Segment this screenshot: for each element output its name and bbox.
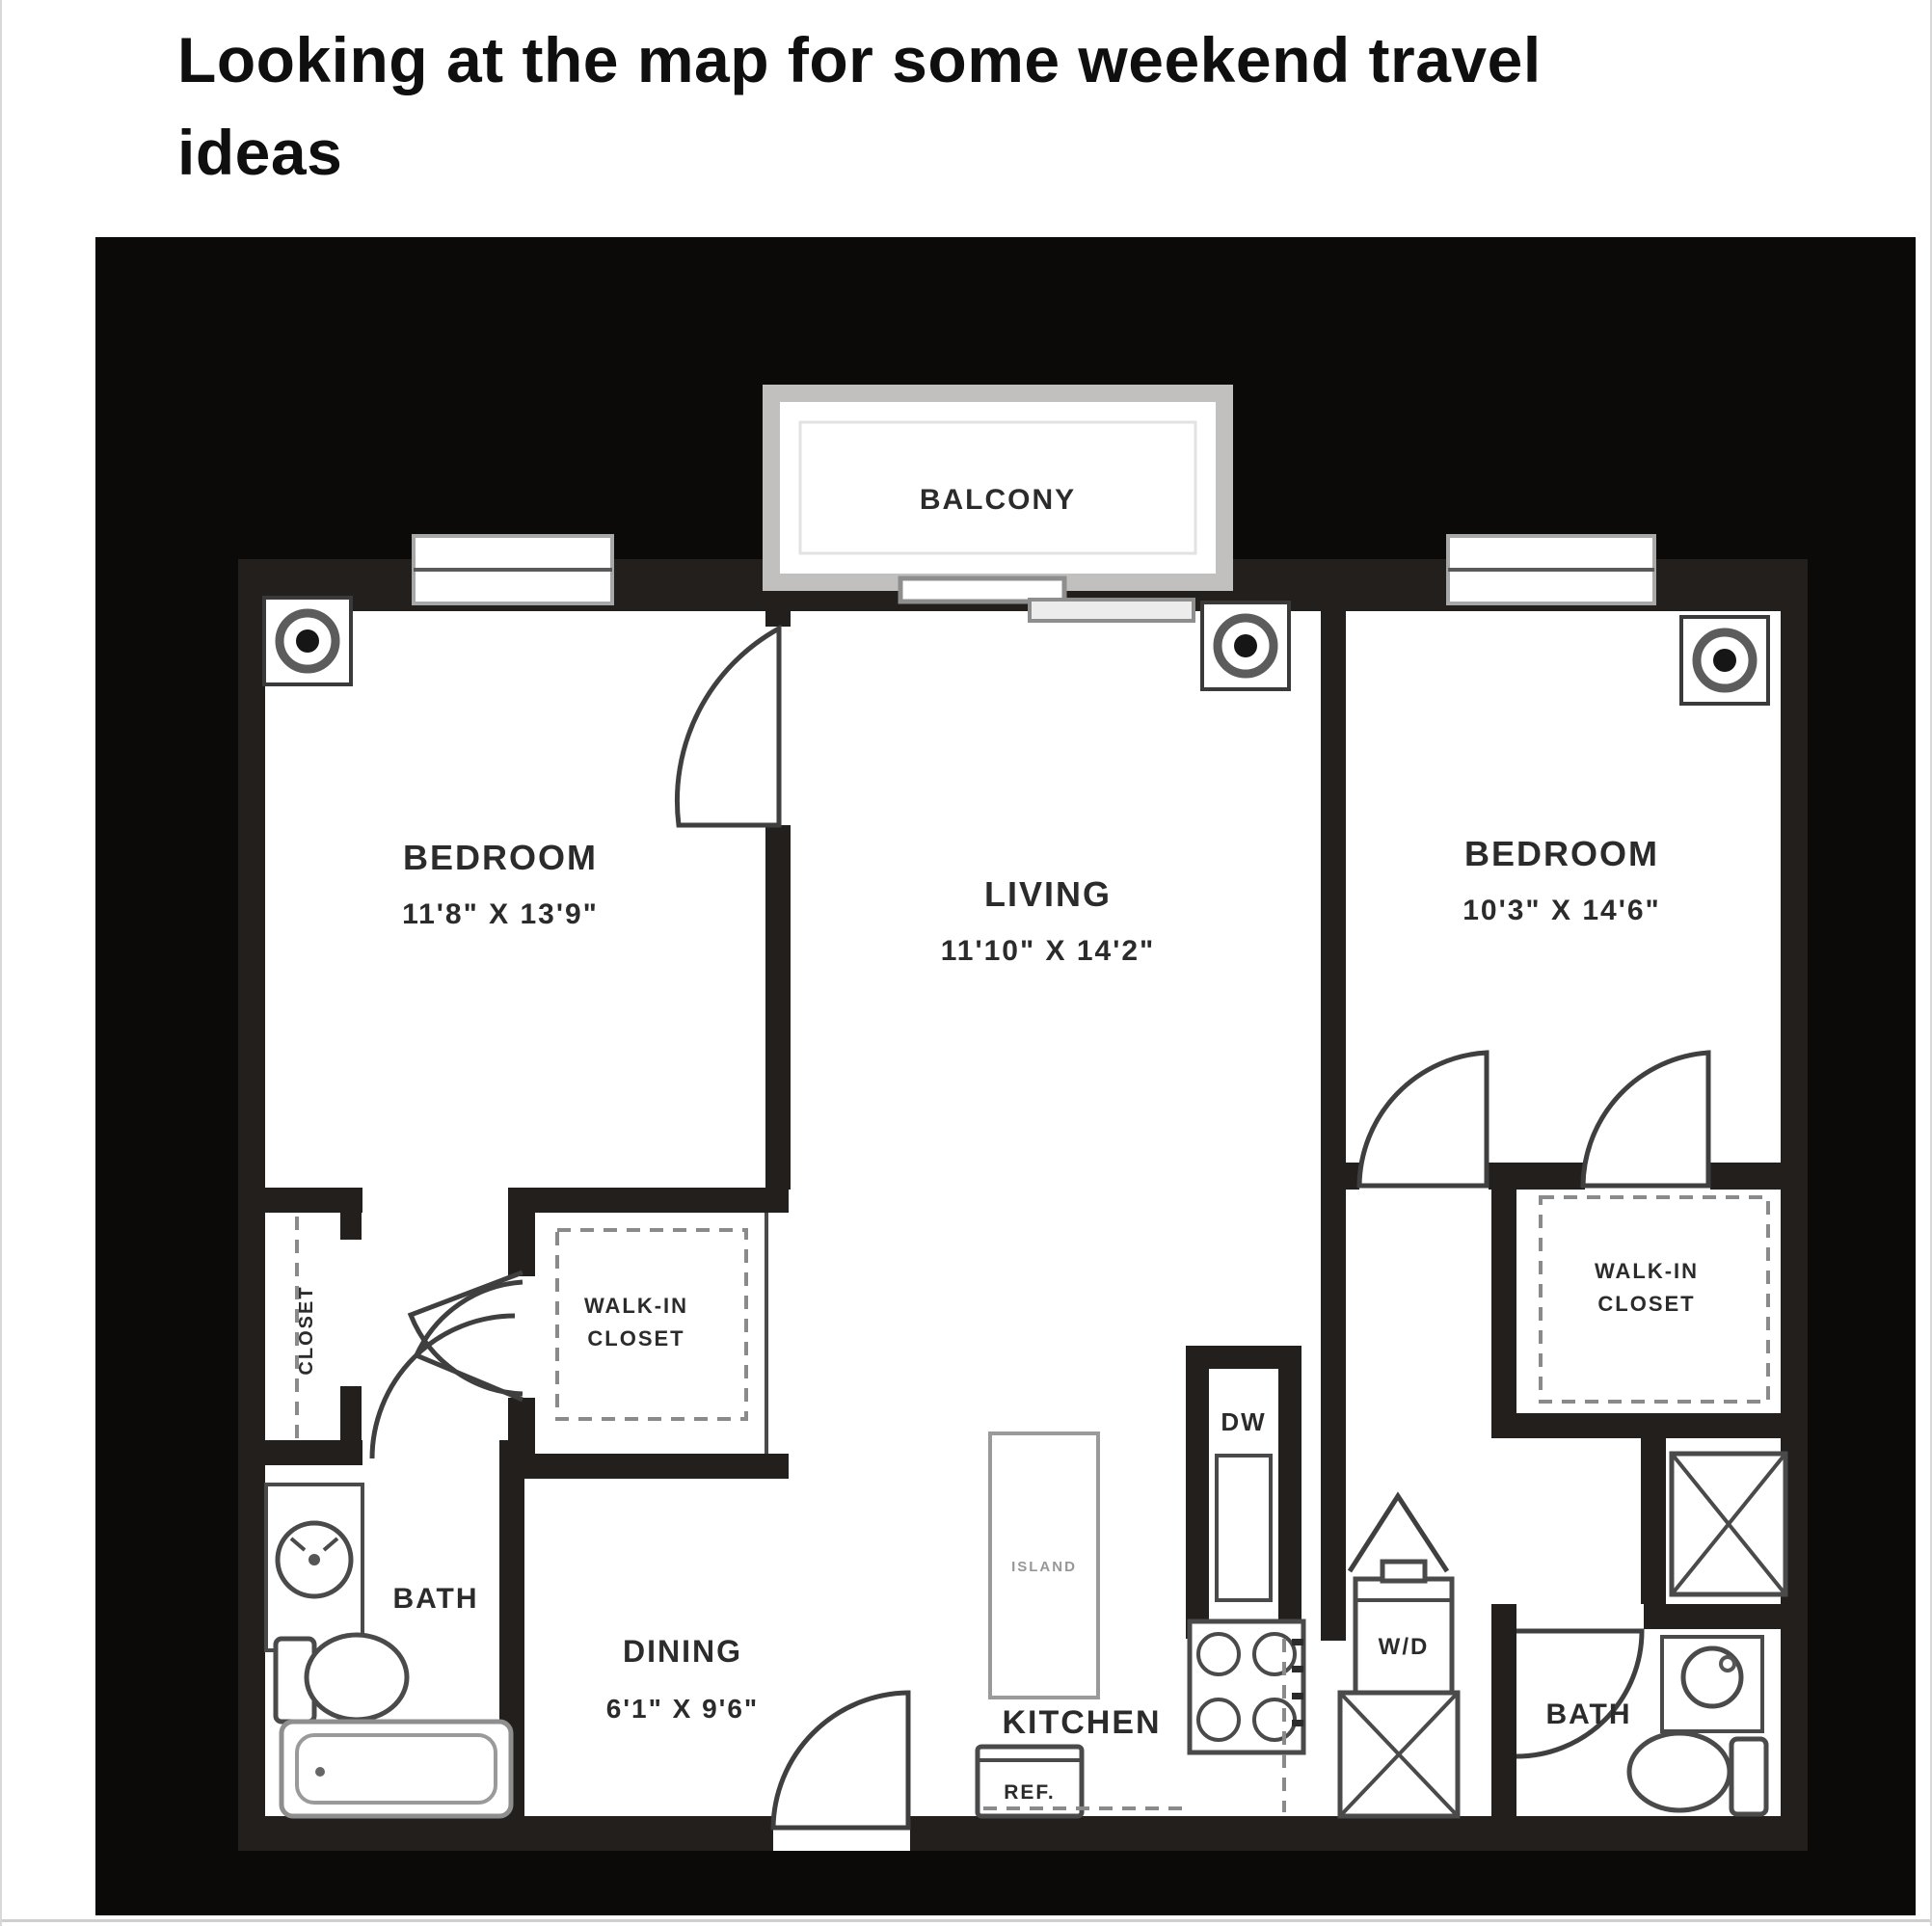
opening-hall [362,1188,508,1213]
wall-bottom [238,1816,1808,1851]
bathtub-drain [315,1767,325,1777]
wic-label-line1: WALK-IN [584,1294,688,1318]
kitchen-label: KITCHEN [1002,1704,1161,1741]
washer-dryer-icon: W/D [1355,1562,1452,1697]
ceiling-light-icon [1681,617,1768,704]
living-dims: 11'10" X 14'2" [941,935,1156,967]
stove-knob [1292,1666,1303,1672]
wall-bath1-top [238,1440,362,1465]
opening-closet-door [340,1240,362,1386]
dining-label: DINING [623,1634,742,1669]
wall-linen-left [1641,1438,1666,1608]
frame-bottom-divider [2,1919,1930,1922]
wic-label-line2: CLOSET [587,1326,684,1351]
sink-drain [309,1554,320,1565]
floor-plan-image: BALCONY [95,237,1916,1915]
wall-wic2-left [1491,1163,1516,1438]
balcony: BALCONY [771,393,1224,621]
refrigerator-label: REF. [1004,1781,1056,1804]
window-bedroom2 [1448,536,1654,603]
ceiling-light-icon [264,598,351,684]
stove-knob [1292,1693,1303,1699]
bedroom1-dims: 11'8" X 13'9" [402,898,599,930]
opening-bath2-door [1516,1604,1644,1629]
island-label: ISLAND [1011,1559,1077,1575]
bedroom1-label: BEDROOM [403,838,598,877]
toilet-icon [1629,1733,1730,1810]
post-caption: Looking at the map for some weekend trav… [177,13,1701,200]
dishwasher-label: DW [1221,1407,1266,1436]
sliding-door-panel-2 [1030,600,1194,621]
wall-wic1-left-upper [508,1188,535,1276]
linen-closet-icon [1672,1454,1785,1594]
bath-left-label: BATH [392,1583,478,1615]
wic-label-line2: CLOSET [1597,1292,1695,1316]
wall-bedroom2-left [1321,559,1346,1641]
wall-wic2-bottom [1491,1413,1808,1438]
wall-dw-rightstub [1278,1346,1301,1639]
wall-dw-leftstub [1186,1346,1209,1639]
wall-right [1781,559,1808,1851]
toilet-tank [1731,1739,1766,1814]
bedroom2-label: BEDROOM [1464,834,1659,873]
stove-body [1190,1621,1303,1752]
wic-label-line1: WALK-IN [1595,1259,1699,1283]
ceiling-light-icon [1202,602,1289,689]
balcony-label: BALCONY [920,484,1076,516]
stove-knob [1292,1720,1303,1726]
wd-handle [1382,1562,1425,1581]
window-bedroom1 [414,536,612,603]
stove-icon [1190,1621,1303,1752]
bedroom2-dims: 10'3" X 14'6" [1462,895,1661,926]
wall-wic1-left-lower [508,1398,535,1465]
wall-wic1-bottom [515,1454,789,1479]
dining-dims: 6'1" X 9'6" [606,1694,759,1724]
shower-box-icon [1340,1693,1458,1816]
wall-bath2-left [1491,1604,1516,1851]
floor-plan-svg: BALCONY [95,237,1916,1915]
stove-knob [1292,1639,1303,1645]
washer-dryer-label: W/D [1379,1634,1430,1660]
toilet-icon [307,1635,407,1720]
post-frame: Looking at the map for some weekend trav… [0,0,1932,1926]
bath-right-label: BATH [1545,1699,1631,1730]
closet-label: CLOSET [296,1285,317,1375]
refrigerator-icon: REF. [978,1747,1082,1816]
living-label: LIVING [984,874,1112,914]
